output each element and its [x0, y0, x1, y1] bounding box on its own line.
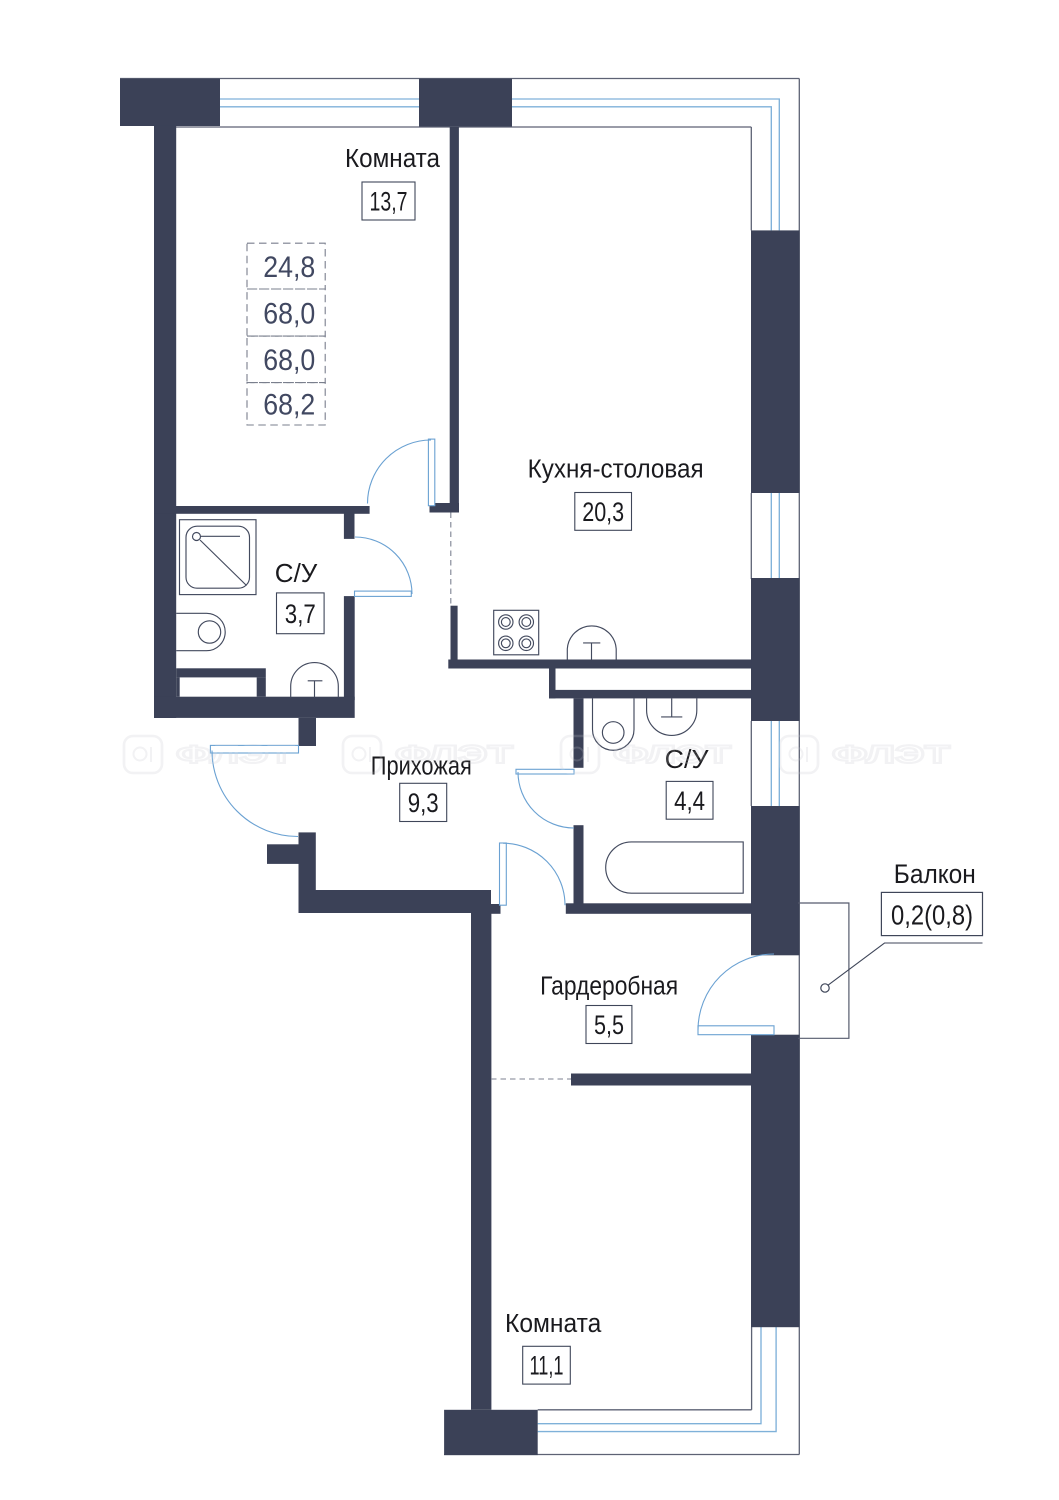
svg-text:3,7: 3,7: [285, 599, 316, 629]
svg-text:20,3: 20,3: [582, 497, 624, 527]
svg-text:5,5: 5,5: [594, 1010, 624, 1040]
svg-text:4,4: 4,4: [674, 786, 705, 816]
svg-text:68,2: 68,2: [263, 389, 315, 422]
svg-text:С/У: С/У: [275, 560, 318, 588]
svg-text:Кухня-столовая: Кухня-столовая: [528, 455, 704, 483]
svg-text:9,3: 9,3: [408, 788, 439, 818]
svg-text:11,1: 11,1: [530, 1351, 564, 1381]
svg-text:Комната: Комната: [345, 145, 441, 173]
svg-text:ФЛЭТ: ФЛЭТ: [613, 741, 731, 769]
svg-text:68,0: 68,0: [263, 297, 315, 330]
svg-text:ФЛЭТ: ФЛЭТ: [832, 741, 950, 769]
svg-text:ФЛЭТ: ФЛЭТ: [176, 741, 294, 769]
svg-text:Комната: Комната: [505, 1310, 602, 1338]
svg-text:24,8: 24,8: [263, 251, 315, 284]
svg-text:0,2(0,8): 0,2(0,8): [891, 899, 973, 930]
svg-text:13,7: 13,7: [370, 187, 408, 217]
svg-text:Гардеробная: Гардеробная: [540, 973, 678, 1001]
svg-text:Балкон: Балкон: [894, 859, 976, 889]
svg-text:ФЛЭТ: ФЛЭТ: [395, 741, 513, 769]
svg-text:68,0: 68,0: [263, 344, 315, 377]
